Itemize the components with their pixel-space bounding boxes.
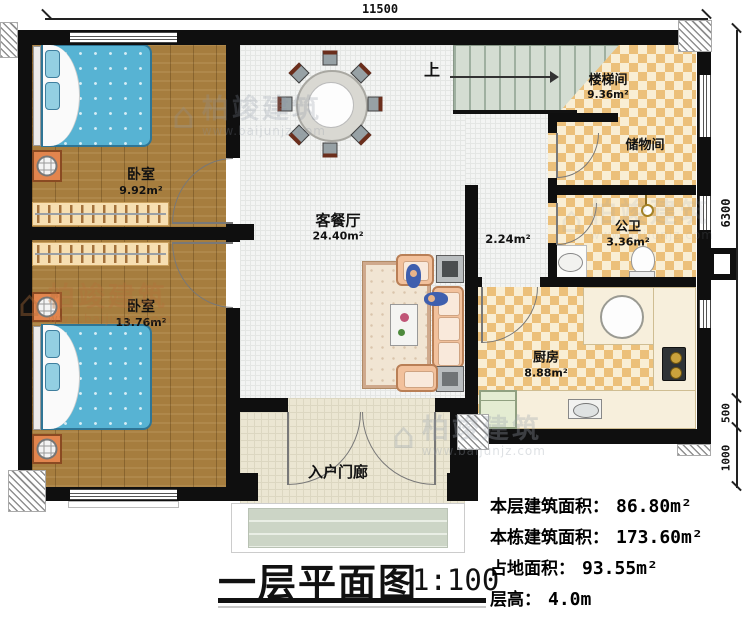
side-table: [436, 255, 464, 283]
info-row-floor-area: 本层建筑面积： 86.80m²: [490, 492, 703, 523]
info-row-storey-height: 层高： 4.0m: [490, 585, 703, 616]
window-kitchen: [699, 300, 711, 328]
dining-chair: [323, 51, 338, 66]
shower-head-icon: [641, 204, 654, 217]
corner-hatch-porch: [457, 414, 489, 450]
window-bedroom1: [70, 32, 177, 43]
wall-bedroom-divider: [18, 227, 228, 240]
door-leaf: [172, 222, 233, 224]
bedroom1-wardrobe: [32, 202, 169, 226]
door-leaf: [481, 287, 483, 343]
bedroom1-nightstand: [32, 150, 62, 182]
title-underline-thick: [218, 598, 486, 603]
room-name: 楼梯间: [587, 73, 628, 89]
burner-icon: [670, 352, 682, 364]
room-name: 储物间: [625, 138, 664, 154]
dining-chair: [278, 97, 293, 112]
hall-area-label: 2.24m²: [485, 233, 530, 247]
wall-bedroom-living-upper: [226, 30, 240, 158]
flue-box-inner: [714, 254, 730, 274]
room-name: 卧室: [115, 299, 166, 316]
info-value: 4.0m: [548, 589, 591, 610]
info-value: 86.80m²: [616, 496, 692, 517]
wardrobe-rail: [35, 253, 166, 255]
room-area: 13.76m²: [115, 316, 166, 329]
info-row-footprint-area: 占地面积： 93.55m²: [490, 554, 703, 585]
window-stairwell: [699, 75, 711, 137]
bed1-pillow: [45, 82, 60, 110]
wall-living-kitchen-v: [465, 185, 478, 429]
person-head: [410, 270, 417, 277]
bedroom2-wardrobe: [32, 242, 169, 266]
porch-pillar-right: [447, 473, 478, 501]
dimension-line-top: [45, 18, 708, 20]
dimension-top-value: 11500: [340, 2, 420, 16]
wall-bedroom-living-lower: [226, 308, 240, 487]
corner-hatch-bottom-left: [8, 470, 46, 512]
door-leaf: [556, 203, 558, 245]
wall-left: [18, 30, 32, 501]
kitchen-counter-bottom: [513, 390, 696, 429]
wall-bath-kitchen-left: [478, 277, 482, 287]
flower-decor: [400, 313, 409, 322]
room-name: 厨房: [524, 351, 567, 367]
dining-chair: [368, 97, 383, 112]
bedroom2-nightstand-top: [32, 292, 62, 322]
bedroom2-nightstand-bottom: [32, 434, 62, 464]
side-table: [436, 366, 464, 392]
door-leaf: [172, 242, 233, 244]
bed2-headboard: [33, 326, 41, 430]
wall-stub-living: [240, 224, 254, 240]
wall-porch-top-right: [435, 398, 478, 412]
stair-arrowhead-icon: [550, 71, 559, 83]
stair-up-label: 上: [424, 60, 440, 79]
room-name: 客餐厅: [312, 211, 363, 229]
table-top: [442, 372, 458, 386]
porch-pillar-left: [226, 473, 258, 501]
armchair-bottom: [396, 364, 438, 392]
kitchen-sink: [568, 399, 602, 419]
room-area: 8.88m²: [524, 366, 567, 379]
wardrobe-rail: [35, 213, 166, 215]
room-name: 公卫: [606, 220, 649, 236]
floor-plan: 上: [0, 0, 750, 622]
room-area: 24.40m²: [312, 229, 363, 242]
room-area: 2.24m²: [485, 233, 530, 247]
door-leaf: [287, 412, 289, 485]
room-area: 9.92m²: [119, 184, 162, 197]
fridge-divider: [481, 400, 515, 401]
stair-up-arrow: [450, 76, 550, 78]
corner-hatch-kitchen: [677, 444, 711, 456]
room-label-living: 客餐厅 24.40m²: [312, 211, 363, 242]
bed1-pillow: [45, 50, 60, 78]
room-name: 入户门廊: [308, 463, 368, 481]
info-label: 本层建筑面积：: [490, 492, 609, 517]
cushion: [404, 371, 434, 388]
info-row-building-area: 本栋建筑面积： 173.60m²: [490, 523, 703, 554]
burner-icon: [670, 367, 682, 379]
wall-porch-top-left: [240, 398, 288, 412]
dimension-side-steps: 1000: [720, 445, 733, 472]
window-bedroom2: [70, 489, 177, 500]
room-label-storage: 储物间: [625, 138, 664, 154]
tv-icon: [442, 261, 458, 277]
dimension-side-porch: 500: [720, 403, 733, 423]
room-name: 卧室: [119, 167, 162, 184]
toilet-bowl: [631, 246, 655, 274]
info-label: 本栋建筑面积：: [490, 523, 609, 548]
wall-kitchen-bottom: [465, 429, 711, 444]
title-underline-thin: [218, 606, 486, 608]
window-sill-bottom: [68, 501, 179, 508]
room-area: 3.36m²: [606, 235, 649, 248]
lamp-icon: [37, 156, 58, 177]
leaf-decor: [398, 329, 405, 336]
coffee-table: [390, 304, 418, 346]
area-info-block: 本层建筑面积： 86.80m² 本栋建筑面积： 173.60m² 占地面积： 9…: [490, 492, 703, 616]
cushion: [438, 317, 460, 341]
corner-hatch-top-left: [0, 22, 18, 58]
lamp-icon: [37, 297, 58, 318]
sink-basin: [558, 253, 583, 272]
wall-bedroom-living-mid: [226, 224, 240, 242]
dimension-line-right: [736, 30, 738, 488]
wall-bath-kitchen-h: [540, 277, 696, 287]
info-label: 层高：: [490, 585, 541, 610]
info-value: 93.55m²: [582, 558, 658, 579]
wall-stair-storage-h: [548, 113, 618, 122]
wall-storage-bath-h: [548, 185, 696, 195]
door-leaf: [434, 412, 436, 485]
info-value: 173.60m²: [616, 527, 703, 548]
stove: [662, 347, 686, 381]
room-label-bedroom2: 卧室 13.76m²: [115, 299, 166, 329]
room-label-porch: 入户门廊: [308, 463, 368, 481]
dining-chair: [323, 143, 338, 158]
window-storage: [699, 196, 711, 230]
room-label-stairwell: 楼梯间 9.36m²: [587, 73, 628, 101]
room-label-bathroom: 公卫 3.36m²: [606, 220, 649, 249]
bed2-pillow: [45, 363, 60, 391]
plan-scale: 1:100: [412, 563, 499, 597]
bed2-pillow: [45, 330, 60, 358]
kitchen-round-table: [600, 295, 644, 339]
cushion: [438, 342, 460, 366]
room-area: 9.36m²: [587, 89, 628, 102]
room-label-bedroom1: 卧室 9.92m²: [119, 167, 162, 197]
person-head: [428, 295, 435, 302]
dining-table-center: [308, 82, 354, 128]
bed1-headboard: [33, 46, 41, 146]
lamp-icon: [37, 439, 58, 460]
sink-basin: [573, 403, 599, 418]
corner-hatch-top-right: [678, 20, 712, 52]
entry-steps: [248, 508, 448, 548]
door-leaf: [556, 133, 558, 178]
info-label: 占地面积：: [490, 554, 575, 579]
room-label-kitchen: 厨房 8.88m²: [524, 351, 567, 380]
dimension-side-main: 6300: [719, 199, 733, 228]
